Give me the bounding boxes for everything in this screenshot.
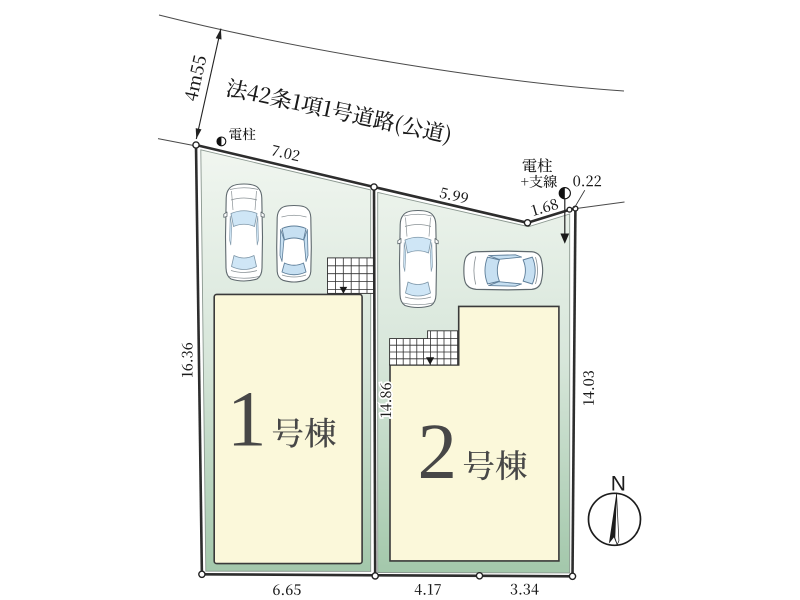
svg-text:N: N xyxy=(611,472,626,495)
svg-text:2: 2 xyxy=(418,409,458,496)
svg-text:1: 1 xyxy=(227,377,267,464)
